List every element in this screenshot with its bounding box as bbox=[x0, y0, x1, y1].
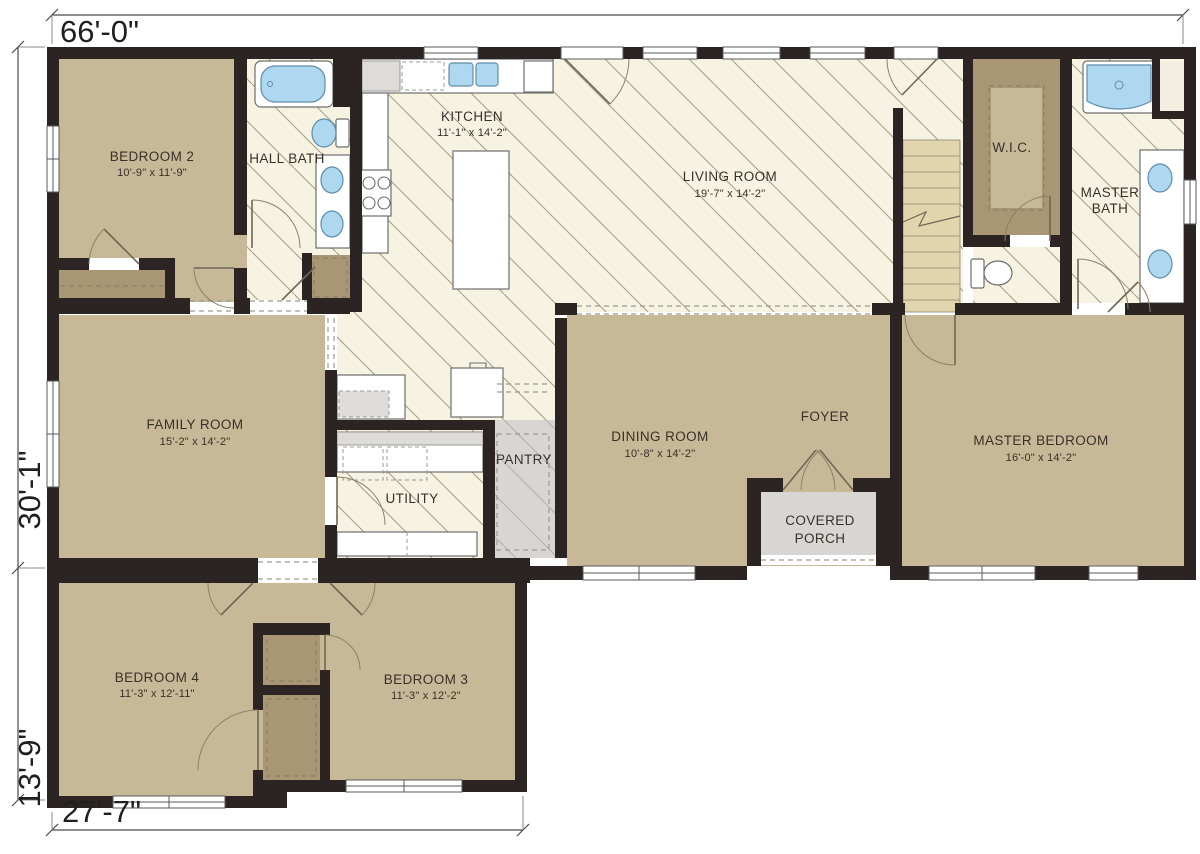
family-room-label: FAMILY ROOM bbox=[147, 417, 244, 432]
fridge-fixture bbox=[524, 61, 553, 92]
room-pantry-floor bbox=[495, 420, 555, 558]
bedroom-4-size: 11'-3" x 12'-11" bbox=[119, 688, 194, 700]
dim-wing-depth: 13'-9" bbox=[12, 729, 47, 808]
room-porch-floor bbox=[761, 492, 878, 564]
window-master-2 bbox=[1089, 566, 1138, 580]
family-room-size: 15'-2" x 14'-2" bbox=[160, 436, 231, 448]
floor-plan-svg: 66'-0" 30'-1" 13'-9" 27'-7" BEDROOM 2 10… bbox=[0, 0, 1200, 854]
foyer-label: FOYER bbox=[801, 409, 850, 424]
master-vanity bbox=[1140, 150, 1184, 303]
master-bath-label-1: MASTER bbox=[1081, 185, 1140, 200]
bedroom-2-size: 10'-9" x 11'-9" bbox=[117, 167, 187, 179]
dim-overall-width: 66'-0" bbox=[60, 14, 139, 49]
window-family bbox=[47, 381, 59, 487]
landing-door-opening bbox=[894, 47, 938, 59]
master-bath-label-2: BATH bbox=[1092, 201, 1129, 216]
toilet-fixture-2 bbox=[971, 259, 1012, 288]
kitchen-island bbox=[453, 151, 509, 289]
hall-closet bbox=[312, 255, 350, 300]
linen-closet bbox=[1160, 62, 1184, 112]
hall-bath-vanity bbox=[316, 155, 350, 248]
window-kitchen bbox=[424, 47, 478, 59]
living-room-size: 19'-7" x 14'-2" bbox=[695, 188, 766, 200]
bedroom-3-size: 11'-3" x 12'-2" bbox=[391, 690, 461, 702]
window-bedroom-2 bbox=[47, 126, 59, 192]
window-master-bath bbox=[1184, 180, 1196, 224]
bedroom-4-closet bbox=[263, 695, 320, 780]
hall-bath-label: HALL BATH bbox=[249, 151, 325, 166]
window-living-2 bbox=[723, 47, 780, 59]
master-bedroom-size: 16'-0" x 14'-2" bbox=[1006, 452, 1077, 464]
back-door-opening bbox=[561, 47, 623, 59]
bathtub-fixture bbox=[255, 61, 333, 107]
wic-label: W.I.C. bbox=[992, 140, 1031, 155]
window-living-1 bbox=[643, 47, 697, 59]
bedroom-2-label: BEDROOM 2 bbox=[110, 149, 195, 164]
toilet-fixture bbox=[312, 119, 349, 147]
kitchen-counter bbox=[362, 59, 553, 93]
bedroom-2-closet bbox=[57, 270, 167, 300]
pantry-label: PANTRY bbox=[496, 452, 552, 467]
staircase bbox=[903, 140, 960, 312]
floor-plan-page: 66'-0" 30'-1" 13'-9" 27'-7" BEDROOM 2 10… bbox=[0, 0, 1200, 854]
porch-label-2: PORCH bbox=[795, 531, 846, 546]
dim-main-depth: 30'-1" bbox=[12, 451, 47, 530]
dining-room-size: 10'-8" x 14'-2" bbox=[625, 448, 696, 460]
window-dining bbox=[583, 566, 695, 580]
utility-label: UTILITY bbox=[385, 491, 438, 506]
window-living-3 bbox=[810, 47, 865, 59]
living-room-label: LIVING ROOM bbox=[683, 169, 777, 184]
kitchen-range bbox=[360, 93, 391, 253]
window-master-1 bbox=[929, 566, 1035, 580]
kitchen-size: 11'-1" x 14'-2" bbox=[437, 127, 507, 139]
porch-label-1: COVERED bbox=[785, 513, 855, 528]
dining-room-label: DINING ROOM bbox=[611, 429, 708, 444]
kitchen-label: KITCHEN bbox=[441, 109, 503, 124]
master-bedroom-label: MASTER BEDROOM bbox=[973, 433, 1108, 448]
shower-fixture bbox=[1083, 61, 1155, 113]
bedroom-4-label: BEDROOM 4 bbox=[115, 670, 200, 685]
bedroom-3-label: BEDROOM 3 bbox=[384, 672, 469, 687]
room-kitchen-living-floor bbox=[362, 59, 893, 312]
dim-wing-width: 27'-7" bbox=[62, 794, 141, 829]
window-bedroom-3 bbox=[346, 780, 462, 792]
kitchen-sink bbox=[449, 63, 473, 86]
